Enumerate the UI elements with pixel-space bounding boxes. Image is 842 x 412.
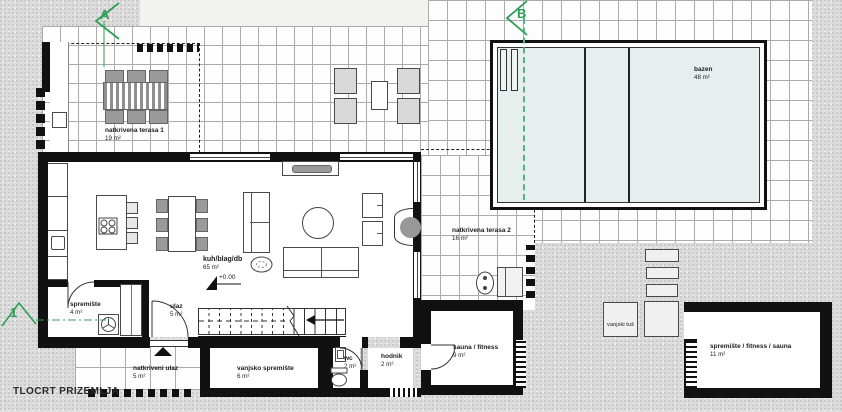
room-area: 2 m² xyxy=(381,361,393,368)
wall-post xyxy=(36,114,45,123)
lounge-chair xyxy=(334,68,357,94)
label-wc: wc 2 m² xyxy=(344,355,356,371)
room-name: vanjski tuš xyxy=(607,322,634,328)
terrace1-box xyxy=(52,112,67,128)
armchair xyxy=(362,221,383,246)
dining-table xyxy=(168,196,196,252)
room-area: 48 m² xyxy=(694,74,710,81)
label-terrace1: natkrivena terasa 1 19 m² xyxy=(105,127,164,143)
stepping-stone xyxy=(645,249,679,262)
room-name: wc xyxy=(344,355,353,362)
window-top-1 xyxy=(190,154,270,160)
label-living: kuh/blag/db 65 m² xyxy=(203,256,242,273)
entry-threshold xyxy=(150,340,188,347)
sauna-window-hatch xyxy=(516,340,526,388)
terrace2-chair xyxy=(497,267,523,297)
label-entry: ulaz 5 m² xyxy=(170,303,183,319)
window-top-2 xyxy=(340,154,413,160)
room-name: ulaz xyxy=(170,303,183,310)
room-name: natkrivena terasa 1 xyxy=(105,127,164,134)
dining-chair xyxy=(196,237,208,251)
room-area: 19 m² xyxy=(105,135,121,142)
sofa-large xyxy=(283,247,359,278)
room-name: hodnik xyxy=(381,353,402,360)
wall-vs-bottom xyxy=(200,388,333,397)
wall-sauna-top xyxy=(421,300,523,311)
pool-steps xyxy=(500,49,507,91)
label-pool: bazen 48 m² xyxy=(694,66,712,82)
stool xyxy=(126,202,138,214)
room-name: kuh/blag/db xyxy=(203,256,242,263)
wall-storage-top-a xyxy=(48,280,68,287)
washing-machine xyxy=(98,314,119,335)
room-area: 4 m² xyxy=(70,309,82,316)
wall-post-entry xyxy=(188,337,198,348)
section-letter-1: 1 xyxy=(10,305,17,320)
lounge-chair xyxy=(334,98,357,124)
section-line-b xyxy=(523,18,525,200)
room-area: 16 m² xyxy=(452,235,468,242)
table xyxy=(103,82,168,110)
room-name: sauna / fitness xyxy=(453,344,498,351)
room-area: 11 m² xyxy=(710,351,725,358)
wall-sauna-bottom xyxy=(421,385,523,395)
counter-divider xyxy=(48,230,68,231)
room-name: spremište / fitness / sauna xyxy=(710,343,791,350)
outbuilding-window-hatch xyxy=(686,343,697,388)
label-covered-entry: natkriveni ulaz 5 m² xyxy=(133,365,178,381)
label-outdoor-storage: vanjsko spremište 6 m² xyxy=(237,365,294,381)
dining-chair xyxy=(156,199,168,213)
window-right-1 xyxy=(414,162,420,202)
wall-bottom-a xyxy=(38,337,150,348)
fireplace-stove xyxy=(400,217,421,238)
outdoor-shower-pad xyxy=(603,302,638,337)
room-name: natkrivena terasa 2 xyxy=(452,227,511,234)
stepping-stone xyxy=(646,284,678,297)
dining-chair xyxy=(156,237,168,251)
room-name: vanjsko spremište xyxy=(237,365,294,372)
room-area: 5 m² xyxy=(170,311,182,318)
pool-lane-line xyxy=(628,48,630,202)
pool-steps xyxy=(511,49,518,91)
wall-wc-hodnik xyxy=(360,370,368,388)
wall-vs-wc xyxy=(318,344,333,395)
section-letter-a: A xyxy=(100,7,109,22)
sofa-cushion-line xyxy=(250,222,270,223)
label-outdoor-shower: vanjski tuš xyxy=(602,322,639,329)
terrace1-bench xyxy=(50,42,69,153)
lounge-chair xyxy=(397,98,420,124)
terrace1-dining-set xyxy=(103,70,168,122)
light-band xyxy=(140,0,428,26)
page-title: TLOCRT PRIZEMLJA xyxy=(13,386,119,397)
pool-lane-line xyxy=(584,48,586,202)
kitchen-counter xyxy=(48,163,68,280)
wall-right-lower xyxy=(413,300,421,340)
stool xyxy=(126,217,138,229)
wall-left xyxy=(38,152,48,348)
label-hallway: hodnik 2 m² xyxy=(381,353,402,369)
armchair xyxy=(362,193,383,218)
label-storage: spremište 4 m² xyxy=(70,301,101,317)
dining-chair xyxy=(196,218,208,232)
room-area: 5 m² xyxy=(133,373,145,380)
stepping-stone-large xyxy=(644,301,679,337)
tv xyxy=(292,165,332,173)
label-terrace2: natkrivena terasa 2 16 m² xyxy=(452,227,511,243)
room-area: 6 m² xyxy=(237,373,249,380)
chair xyxy=(105,110,124,124)
label-elevation: +0.00 xyxy=(219,274,235,282)
room-area: 65 m² xyxy=(203,264,219,271)
sauna-door-gap xyxy=(421,344,431,370)
dining-chair xyxy=(156,218,168,232)
room-area: 9 m² xyxy=(453,352,465,359)
lounge-chair xyxy=(397,68,420,94)
stool xyxy=(126,232,138,244)
wc-sink-tap xyxy=(337,350,344,359)
room-area: 2 m² xyxy=(344,363,356,370)
counter-divider xyxy=(48,256,68,257)
storage-closet xyxy=(120,284,142,336)
dining-chair xyxy=(196,199,208,213)
wall-post xyxy=(36,88,45,97)
wall-storage-right xyxy=(142,280,149,338)
roof-ticks-terrace1 xyxy=(137,44,199,52)
lounge-table xyxy=(371,81,388,110)
floor-plan: natkrivena terasa 1 19 m² natkrivena ter… xyxy=(0,0,842,412)
room-name: bazen xyxy=(694,66,712,73)
chair xyxy=(149,110,168,124)
wall-post xyxy=(36,127,45,136)
terrace-lounge-set xyxy=(334,66,426,126)
outbuilding-door-gap xyxy=(684,312,697,339)
section-letter-b: B xyxy=(517,6,526,21)
window-right-2 xyxy=(414,252,420,298)
stepping-stone xyxy=(646,267,679,279)
label-outbuilding: spremište / fitness / sauna 11 m² xyxy=(710,343,791,359)
wall-post xyxy=(36,140,45,149)
label-sauna-fitness: sauna / fitness 9 m² xyxy=(453,344,498,360)
roof-line-terrace1-right xyxy=(199,43,200,153)
room-name: spremište xyxy=(70,301,101,308)
counter-divider xyxy=(48,196,68,197)
elevation-value: +0.00 xyxy=(219,274,235,281)
chair xyxy=(127,110,146,124)
staircase-dashed-mask xyxy=(199,309,289,334)
kitchen-island xyxy=(96,195,127,250)
wall-terrace1-left xyxy=(42,42,50,92)
wall-post xyxy=(36,101,45,110)
roof-ticks-terrace2 xyxy=(526,245,535,298)
hodnik-vent-hatch xyxy=(388,388,417,397)
room-name: natkriveni ulaz xyxy=(133,365,178,372)
kitchen-sink xyxy=(51,236,65,250)
sofa-back-line xyxy=(284,270,358,271)
